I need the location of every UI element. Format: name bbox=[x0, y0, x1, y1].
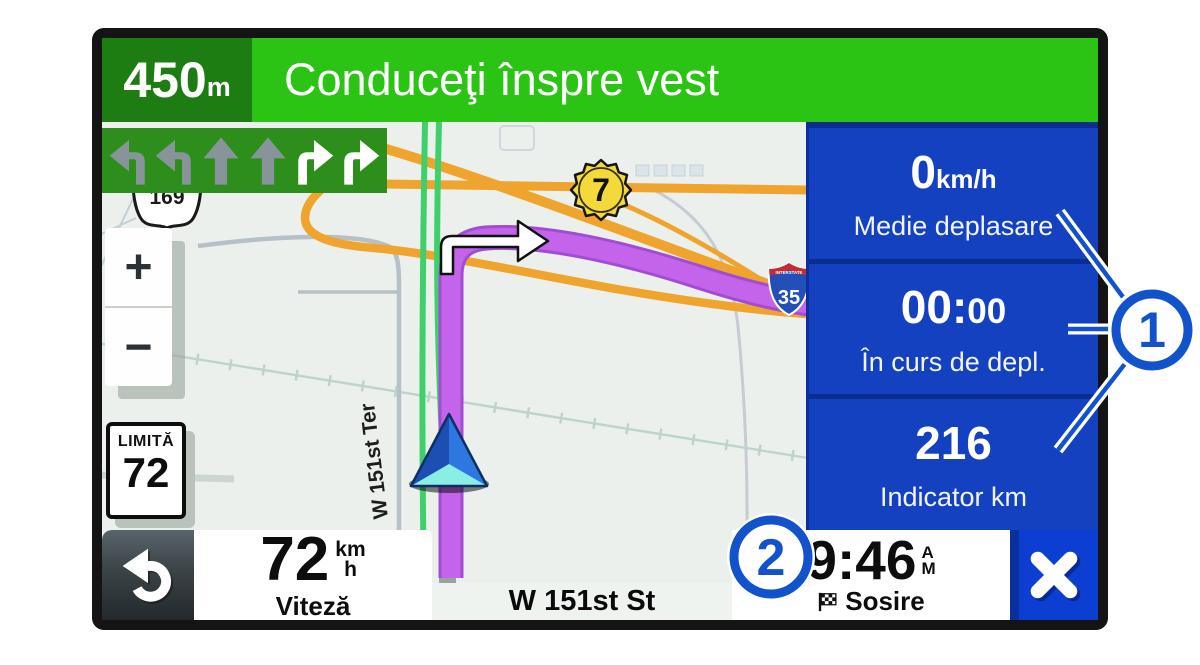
lane-arrow-turn-left-icon bbox=[108, 135, 150, 187]
plus-icon: + bbox=[124, 240, 152, 295]
checkered-flag-icon bbox=[817, 591, 839, 613]
close-x-icon bbox=[1028, 549, 1080, 601]
svg-text:INTERSTATE: INTERSTATE bbox=[776, 270, 803, 275]
callout-1: 1 bbox=[1116, 294, 1188, 366]
data-field-time-moving[interactable]: 00: 00 În curs de depl. bbox=[809, 264, 1098, 400]
zoom-controls: + − bbox=[105, 228, 172, 386]
back-button[interactable] bbox=[102, 530, 194, 620]
arrival-label: Sosire bbox=[845, 586, 925, 617]
callout-1-number: 1 bbox=[1138, 302, 1166, 358]
speed-unit-top: km bbox=[335, 540, 365, 559]
odometer-label: Indicator km bbox=[880, 482, 1027, 513]
speed-unit-bottom: h bbox=[335, 560, 365, 579]
lane-guidance-bar bbox=[102, 128, 387, 193]
average-speed-unit: km/h bbox=[936, 164, 997, 195]
speed-limit-sign: LIMITĂ 72 bbox=[106, 422, 186, 519]
current-street-bar[interactable]: W 151st St bbox=[432, 583, 732, 620]
zoom-in-button[interactable]: + bbox=[105, 228, 172, 308]
distance-value: 450 bbox=[123, 51, 206, 109]
figure: 169 7 INTERSTATE 35 W 151st Ter bbox=[0, 0, 1200, 665]
speed-value: 72 bbox=[260, 529, 329, 591]
svg-text:7: 7 bbox=[592, 172, 610, 208]
speed-limit-value: 72 bbox=[110, 451, 182, 495]
navigation-screen: 169 7 INTERSTATE 35 W 151st Ter bbox=[102, 38, 1098, 620]
data-field-odometer[interactable]: 216 Indicator km bbox=[809, 399, 1098, 530]
data-fields-sidebar: 0 km/h Medie deplasare 00: 00 În curs de… bbox=[806, 122, 1098, 530]
arrival-time-value: 9:46 bbox=[806, 533, 916, 588]
odometer-value: 216 bbox=[915, 416, 992, 470]
time-moving-seconds: 00 bbox=[967, 292, 1006, 332]
time-moving-label: În curs de depl. bbox=[861, 347, 1046, 378]
arrival-time-field[interactable]: 9:46 A M Sosire bbox=[732, 530, 1010, 620]
data-field-average-speed[interactable]: 0 km/h Medie deplasare bbox=[809, 128, 1098, 264]
lane-arrow-turn-left-icon bbox=[154, 135, 196, 187]
meridiem-bottom: M bbox=[921, 561, 935, 576]
lane-arrow-turn-right-active-icon bbox=[293, 135, 335, 187]
current-speed-field[interactable]: 72 km h Viteză bbox=[194, 530, 432, 620]
instruction-text: Conduceţi înspre vest bbox=[252, 38, 1098, 122]
minus-icon: − bbox=[124, 320, 152, 375]
zoom-out-button[interactable]: − bbox=[105, 308, 172, 386]
lane-arrow-straight-icon bbox=[247, 135, 289, 187]
back-arrow-icon bbox=[119, 546, 177, 604]
svg-text:35: 35 bbox=[778, 287, 800, 309]
lane-arrow-turn-right-active-icon bbox=[339, 135, 381, 187]
street-name: W 151st St bbox=[509, 585, 656, 617]
speed-label: Viteză bbox=[276, 591, 351, 621]
time-moving-value: 00: bbox=[901, 280, 967, 334]
instruction-bar[interactable]: 450 m Conduceţi înspre vest bbox=[102, 38, 1098, 122]
arrival-meridiem: A M bbox=[921, 545, 935, 576]
average-speed-value: 0 bbox=[910, 145, 936, 199]
speed-unit: km h bbox=[335, 540, 365, 579]
gps-device-frame: 169 7 INTERSTATE 35 W 151st Ter bbox=[92, 28, 1108, 630]
close-navigation-button[interactable] bbox=[1010, 530, 1098, 620]
lane-arrow-straight-icon bbox=[200, 135, 242, 187]
average-speed-label: Medie deplasare bbox=[854, 211, 1054, 242]
distance-unit: m bbox=[207, 72, 231, 103]
next-turn-distance: 450 m bbox=[102, 38, 252, 122]
